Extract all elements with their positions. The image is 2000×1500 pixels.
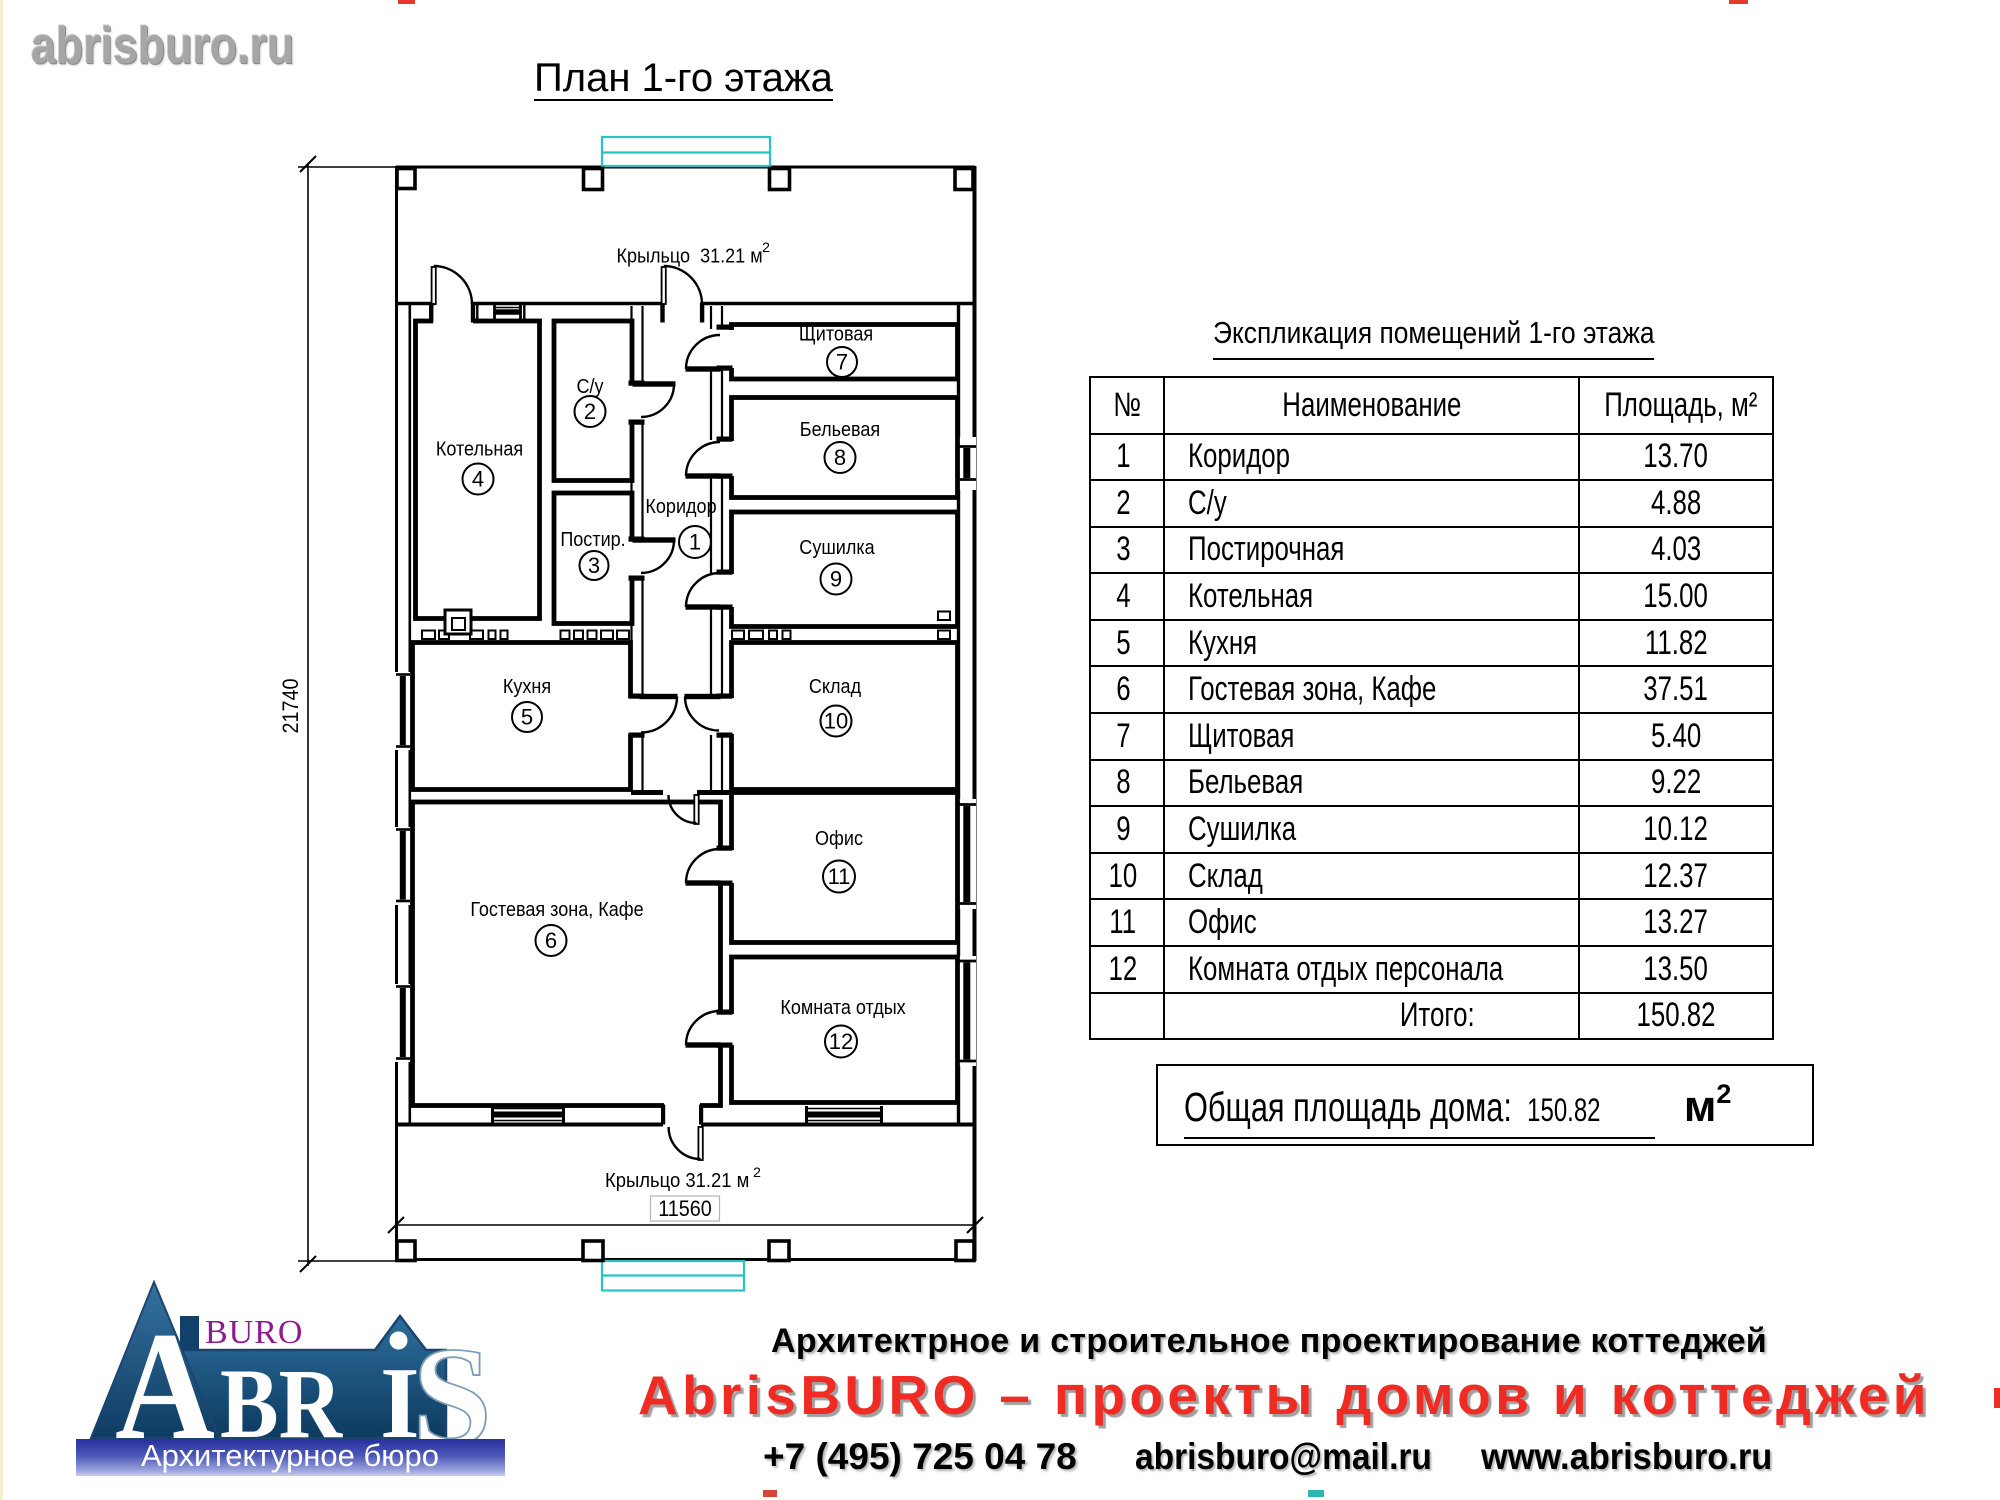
- svg-text:Бельевая: Бельевая: [800, 419, 880, 441]
- svg-text:BURO: BURO: [205, 1314, 303, 1351]
- svg-text:3: 3: [588, 553, 600, 578]
- svg-text:С/у: С/у: [576, 376, 603, 398]
- svg-text:Крыльцо 31.21 м: Крыльцо 31.21 м: [605, 1169, 749, 1192]
- svg-text:Постир.: Постир.: [560, 529, 625, 551]
- svg-text:5: 5: [521, 705, 533, 730]
- svg-text:Гостевая зона, Кафе: Гостевая зона, Кафе: [470, 899, 643, 921]
- svg-text:12: 12: [829, 1029, 853, 1054]
- svg-text:Коридор: Коридор: [645, 496, 716, 518]
- svg-text:2: 2: [753, 1164, 761, 1180]
- svg-text:7: 7: [836, 350, 848, 375]
- svg-text:Склад: Склад: [809, 676, 861, 698]
- svg-text:Офис: Офис: [815, 828, 863, 850]
- svg-text:10: 10: [824, 709, 848, 734]
- svg-text:9: 9: [830, 567, 842, 592]
- svg-text:4: 4: [472, 467, 484, 492]
- svg-text:1: 1: [689, 530, 701, 555]
- svg-text:6: 6: [545, 928, 557, 953]
- svg-text:Щитовая: Щитовая: [799, 324, 873, 346]
- svg-text:2: 2: [584, 399, 596, 424]
- svg-text:8: 8: [834, 445, 846, 470]
- svg-text:Кухня: Кухня: [503, 676, 551, 698]
- svg-text:Котельная: Котельная: [436, 439, 523, 461]
- svg-text:Сушилка: Сушилка: [799, 537, 875, 559]
- svg-text:Крыльцо 31.21 м: Крыльцо 31.21 м: [617, 246, 763, 268]
- svg-text:2: 2: [762, 239, 770, 255]
- svg-text:21740: 21740: [279, 678, 303, 733]
- svg-text:11: 11: [828, 864, 851, 889]
- svg-text:Архитектурное бюро: Архитектурное бюро: [141, 1438, 439, 1473]
- svg-text:11560: 11560: [658, 1197, 712, 1221]
- svg-text:Комната отдых: Комната отдых: [780, 997, 906, 1019]
